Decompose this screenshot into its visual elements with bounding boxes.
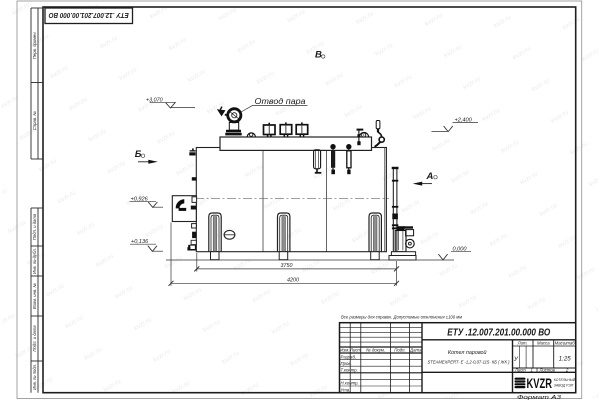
svg-text:Дата: Дата [409, 348, 422, 353]
svg-text:В: В [315, 50, 322, 61]
svg-text:Н.контр.: Н.контр. [341, 381, 359, 386]
svg-text:ЕТУ .12.007.201.00.000 ВО: ЕТУ .12.007.201.00.000 ВО [48, 11, 128, 18]
svg-text:Подп.: Подп. [394, 348, 405, 353]
svg-text:Подп. и дата: Подп. и дата [32, 325, 37, 352]
svg-text:Лист: Лист [349, 348, 361, 353]
svg-text:1: 1 [531, 367, 533, 372]
svg-text:3750: 3750 [281, 263, 293, 269]
svg-text:КОТЕЛЬНЫЙ: КОТЕЛЬНЫЙ [554, 378, 576, 382]
svg-text:1:25: 1:25 [559, 356, 572, 363]
svg-text:№ докум.: № докум. [366, 348, 385, 353]
svg-text:Т.контр.: Т.контр. [341, 368, 358, 373]
svg-text:Котел паровой: Котел паровой [448, 349, 487, 356]
svg-text:4200: 4200 [287, 277, 299, 283]
svg-text:Утв.: Утв. [341, 387, 351, 392]
svg-text:Перв. примен.: Перв. примен. [32, 31, 37, 59]
svg-text:KVZR: KVZR [527, 375, 553, 391]
svg-text:Лист: Лист [514, 367, 526, 372]
svg-text:Формат А3: Формат А3 [517, 395, 562, 400]
svg-text:Масштаб: Масштаб [555, 341, 576, 346]
svg-text:Инв. № подл.: Инв. № подл. [32, 364, 37, 390]
svg-text:Инв. № дубл.: Инв. № дубл. [32, 248, 37, 274]
svg-text:Справ. №: Справ. № [32, 111, 37, 130]
svg-text:Все размеры для справок. Допу: Все размеры для справок. Допустимые откл… [341, 315, 463, 321]
svg-text:STEAMEXPERT- Е -1,2-0,07-115-: STEAMEXPERT- Е -1,2-0,07-115- КБ ( ЖК ) [428, 360, 510, 365]
svg-text:Листов: Листов [539, 367, 556, 372]
svg-text:Лит.: Лит. [517, 341, 528, 346]
svg-text:Подп. и дата: Подп. и дата [32, 213, 37, 240]
svg-text:А: А [426, 171, 434, 182]
svg-text:Масса: Масса [537, 341, 550, 346]
svg-text:Отвод пара: Отвод пара [255, 97, 307, 106]
svg-text:Взам. инв. №: Взам. инв. № [32, 283, 37, 309]
svg-text:Изм.: Изм. [340, 348, 349, 353]
svg-text:Б: Б [135, 149, 142, 160]
svg-text:ЕТУ .12.007.201.00.000 ВО: ЕТУ .12.007.201.00.000 ВО [447, 327, 550, 338]
svg-text:Разраб.: Разраб. [341, 354, 357, 359]
svg-text:Пров.: Пров. [341, 361, 352, 366]
svg-text:ЗАВОД РЭП: ЗАВОД РЭП [554, 383, 574, 387]
